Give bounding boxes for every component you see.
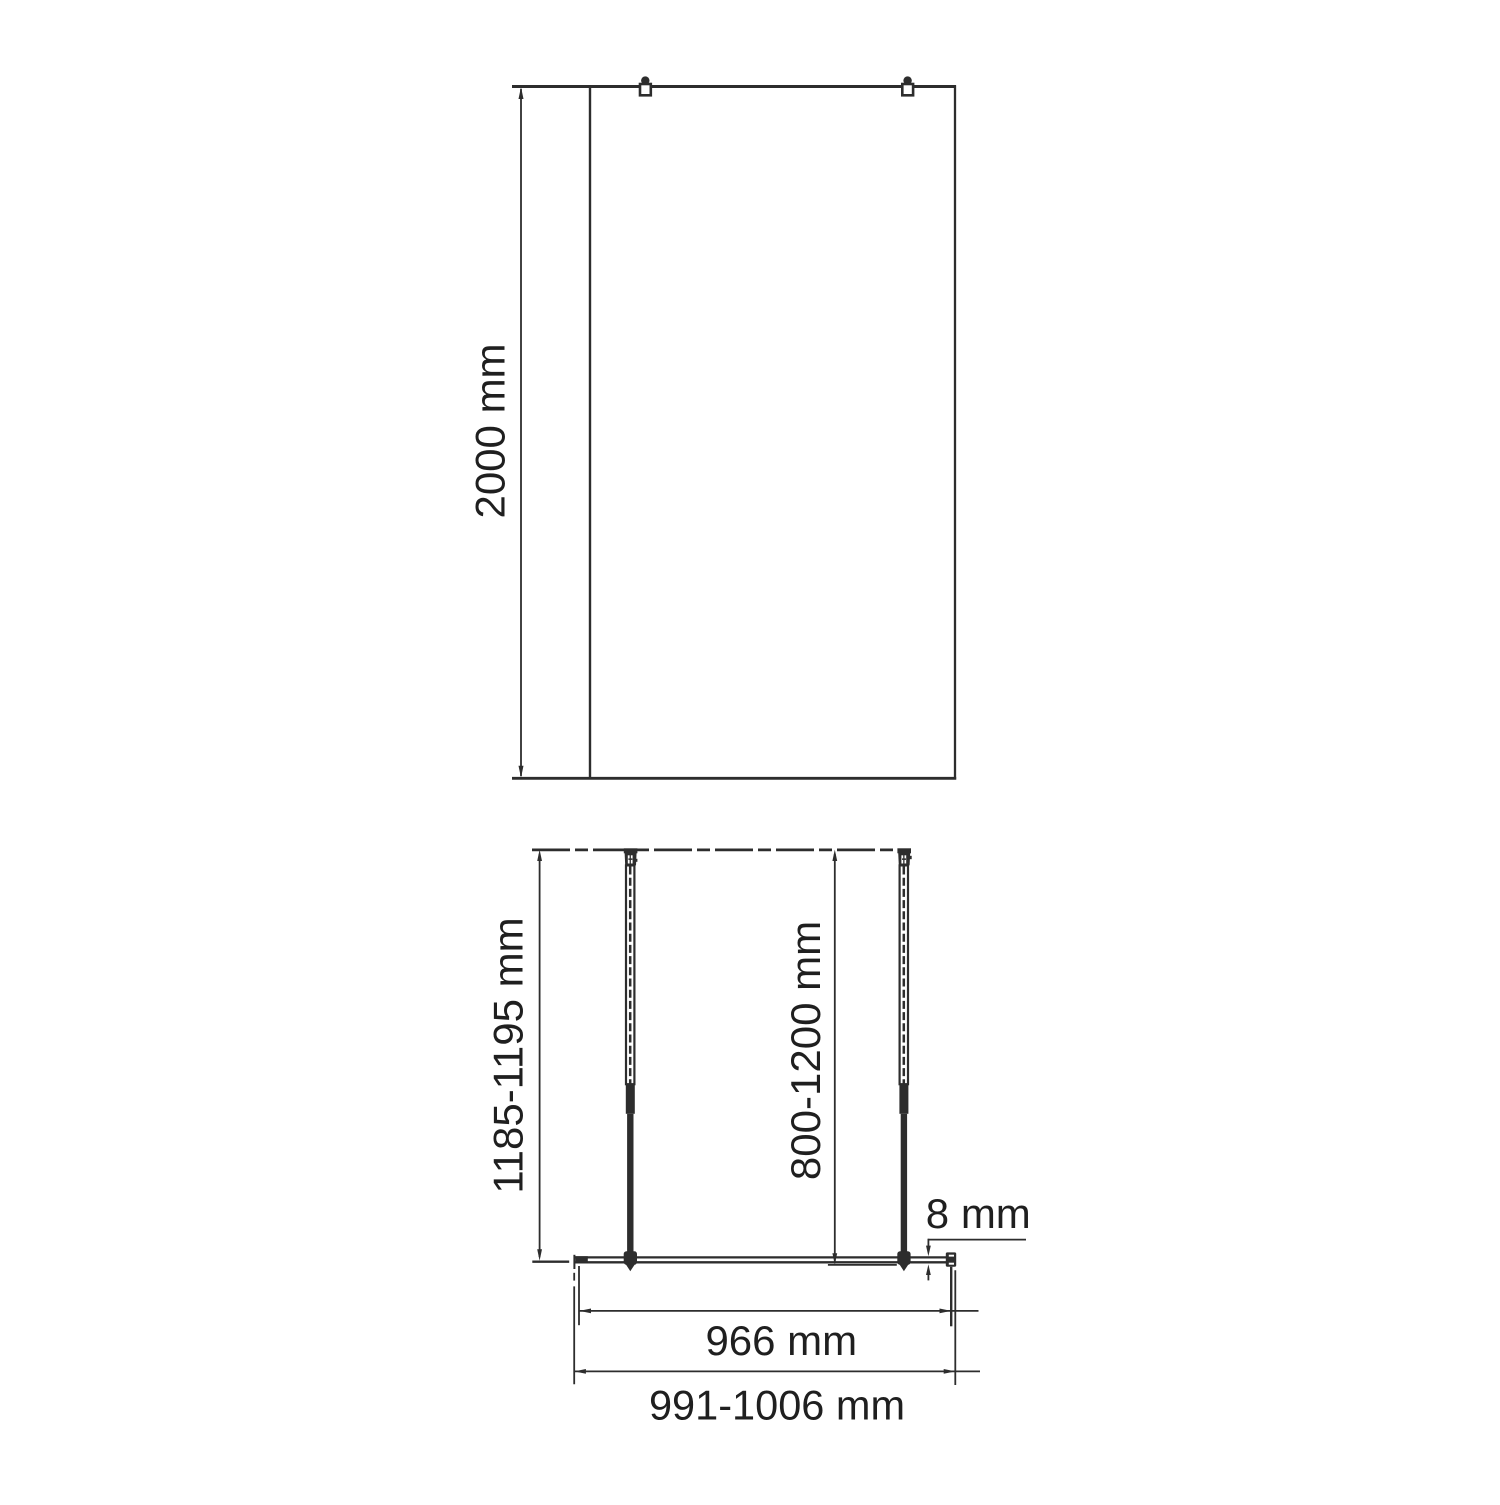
svg-text:2000 mm: 2000 mm — [467, 343, 514, 518]
svg-text:991-1006 mm: 991-1006 mm — [649, 1382, 905, 1429]
svg-text:1185-1195 mm: 1185-1195 mm — [485, 917, 532, 1193]
svg-text:8 mm: 8 mm — [926, 1190, 1031, 1237]
svg-text:800-1200 mm: 800-1200 mm — [782, 921, 829, 1180]
svg-text:966 mm: 966 mm — [705, 1317, 857, 1364]
